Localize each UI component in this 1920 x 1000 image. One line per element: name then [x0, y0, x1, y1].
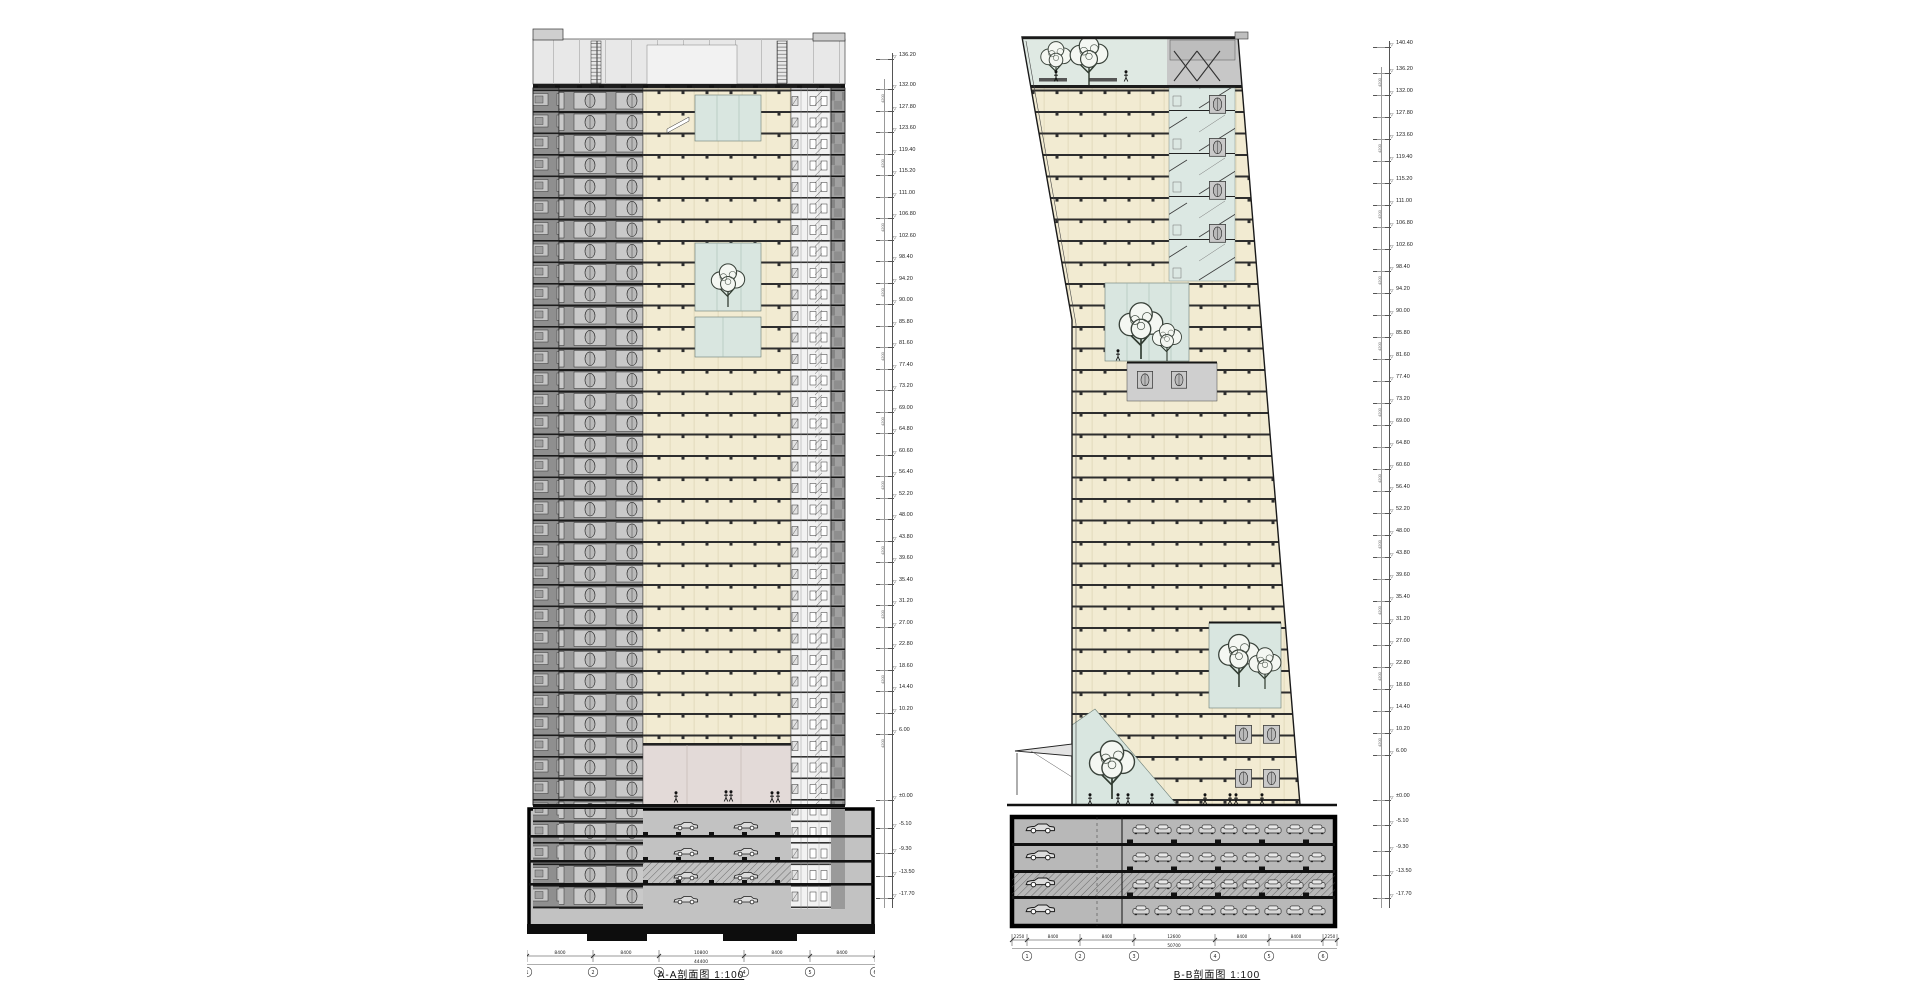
service-risers [791, 88, 831, 805]
svg-text:4: 4 [1213, 954, 1216, 960]
level-marker-icon: ▽ [1390, 43, 1393, 47]
level-elevation-label: ±0.00 [899, 794, 913, 799]
level-elevation-label: 10.20 [1396, 727, 1410, 732]
elevator-icon [1235, 725, 1251, 743]
level-elevation-label: 90.00 [1396, 309, 1410, 314]
level-elevation-label: 64.80 [899, 427, 913, 432]
level-elevation-label: 77.40 [1396, 375, 1410, 380]
level-elevation-label: 48.00 [1396, 529, 1410, 534]
level-marker-icon: ▽ [1390, 531, 1393, 535]
level-elevation-label: 77.40 [899, 363, 913, 368]
level-marker-icon: ▽ [893, 279, 896, 283]
floor-height-label: 4200 [880, 417, 885, 426]
basement-parking [529, 809, 873, 926]
caption-section-a: A-A剖面图 1:100 [527, 966, 875, 981]
svg-text:8400: 8400 [1048, 934, 1059, 939]
svg-text:2: 2 [1078, 954, 1081, 960]
level-marker-icon: ▽ [1390, 821, 1393, 825]
level-marker-icon: ▽ [1390, 201, 1393, 205]
elevator-lobby [1127, 362, 1217, 402]
level-marker-icon: ▽ [1390, 597, 1393, 601]
scale-line [892, 53, 893, 908]
level-elevation-label: 115.20 [899, 169, 915, 174]
level-elevation-label: 6.00 [899, 728, 910, 733]
dimension-total: 50700 [1167, 943, 1181, 948]
stair-shaft [777, 41, 787, 84]
level-marker-icon: ▽ [1390, 619, 1393, 623]
level-marker-icon: ▽ [893, 85, 896, 89]
elevator-icon [1209, 224, 1225, 242]
level-marker-icon: ▽ [1390, 847, 1393, 851]
foundation-mat [527, 924, 875, 941]
level-elevation-label: -5.10 [899, 822, 912, 827]
level-elevation-label: 140.40 [1396, 41, 1413, 46]
east-facade-steps [831, 88, 845, 805]
level-elevation-label: 27.00 [899, 621, 913, 626]
level-elevation-label: 94.20 [899, 277, 913, 282]
level-marker-icon: ▽ [893, 193, 896, 197]
level-elevation-label: 22.80 [899, 642, 913, 647]
level-elevation-label: 56.40 [1396, 485, 1410, 490]
office-floors [643, 88, 791, 745]
sky-garden-lower [1209, 622, 1281, 709]
floor-height-label: 4200 [880, 159, 885, 168]
upper-stair-zone [1169, 88, 1235, 281]
level-elevation-label: 27.00 [1396, 639, 1410, 644]
atrium-middle [695, 243, 761, 311]
caption-section-a-text: A-A剖面图 1:100 [658, 970, 744, 981]
level-marker-icon: ▽ [893, 537, 896, 541]
parking-row-b1 [1133, 825, 1325, 834]
floor-height-label: 4200 [880, 481, 885, 490]
level-elevation-label: -5.10 [1396, 819, 1409, 824]
caption-section-b: B-B剖面图 1:100 [997, 966, 1437, 981]
level-marker-icon: ▽ [1390, 223, 1393, 227]
level-elevation-label: 31.20 [899, 599, 913, 604]
svg-text:8400: 8400 [554, 950, 565, 956]
level-marker-icon: ▽ [1390, 894, 1393, 898]
level-marker-icon: ▽ [893, 150, 896, 154]
scale-line [1389, 41, 1390, 908]
svg-text:12600: 12600 [1167, 934, 1181, 939]
elevator-core [559, 88, 643, 805]
level-elevation-label: 123.60 [1396, 133, 1413, 138]
level-marker-icon: ▽ [893, 107, 896, 111]
level-elevation-label: -9.30 [1396, 845, 1409, 850]
level-elevation-label: 35.40 [899, 578, 913, 583]
level-marker-icon: ▽ [893, 515, 896, 519]
floor-height-label: 4200 [1377, 408, 1382, 417]
level-elevation-label: 85.80 [1396, 331, 1410, 336]
level-marker-icon: ▽ [893, 365, 896, 369]
level-marker-icon: ▽ [893, 55, 896, 59]
level-marker-icon: ▽ [1390, 69, 1393, 73]
level-marker-icon: ▽ [1390, 245, 1393, 249]
atrium-lower [695, 317, 761, 357]
floor-height-label: 4200 [880, 546, 885, 555]
level-elevation-label: 81.60 [1396, 353, 1410, 358]
stair-shaft [591, 41, 601, 84]
level-elevation-label: 22.80 [1396, 661, 1410, 666]
level-marker-icon: ▽ [893, 824, 896, 828]
level-marker-icon: ▽ [893, 257, 896, 261]
level-elevation-label: 64.80 [1396, 441, 1410, 446]
level-elevation-label: 132.00 [899, 83, 916, 88]
dimension-values: 2250 8400 8400 12600 8400 8400 2250 5070… [1014, 934, 1336, 948]
level-elevation-label: 60.60 [1396, 463, 1410, 468]
floor-height-label: 4200 [1377, 606, 1382, 615]
level-elevation-label: 119.40 [1396, 155, 1412, 160]
level-marker-icon: ▽ [893, 601, 896, 605]
riser-hatch-column [815, 88, 822, 805]
level-elevation-label: -17.70 [899, 892, 915, 897]
level-elevation-label: 111.00 [1396, 199, 1412, 204]
level-marker-icon: ▽ [893, 796, 896, 800]
level-marker-icon: ▽ [1390, 179, 1393, 183]
bench [1039, 78, 1067, 82]
level-marker-icon: ▽ [893, 666, 896, 670]
elevator-icon [1263, 769, 1279, 787]
level-marker-icon: ▽ [893, 849, 896, 853]
floor-height-label: 4200 [1377, 738, 1382, 747]
level-marker-icon: ▽ [893, 894, 896, 898]
floor-height-label: 4200 [1377, 78, 1382, 87]
level-marker-icon: ▽ [893, 343, 896, 347]
bench [1089, 78, 1117, 82]
grid-bubbles: 1 2 3 4 5 6 [1022, 951, 1328, 961]
entrance-canopy [1015, 744, 1072, 795]
section-a-roof-crown [533, 29, 845, 88]
level-elevation-label: 94.20 [1396, 287, 1410, 292]
svg-text:2250: 2250 [1325, 934, 1336, 939]
level-elevation-label: 14.40 [1396, 705, 1410, 710]
level-elevation-label: 48.00 [899, 513, 913, 518]
level-elevation-label: 102.60 [1396, 243, 1413, 248]
level-marker-icon: ▽ [1390, 377, 1393, 381]
floor-height-label: 4200 [880, 94, 885, 103]
level-marker-icon: ▽ [893, 451, 896, 455]
level-elevation-label: 69.00 [899, 406, 913, 411]
level-elevation-label: 43.80 [1396, 551, 1410, 556]
level-marker-icon: ▽ [893, 236, 896, 240]
level-elevation-label: ±0.00 [1396, 794, 1410, 799]
level-marker-icon: ▽ [1390, 157, 1393, 161]
level-elevation-label: 127.80 [899, 105, 916, 110]
elevator-icon [1209, 95, 1225, 113]
floor-height-label: 4200 [880, 739, 885, 748]
floor-height-label: 4200 [1377, 540, 1382, 549]
parapet-right [1235, 32, 1248, 39]
floor-height-label: 4200 [880, 610, 885, 619]
level-elevation-label: 52.20 [899, 492, 913, 497]
basement-parking [1012, 817, 1335, 926]
level-elevation-label: 31.20 [1396, 617, 1410, 622]
level-marker-icon: ▽ [893, 171, 896, 175]
level-elevation-label: 106.80 [899, 212, 916, 217]
level-marker-icon: ▽ [1390, 333, 1393, 337]
level-elevation-label: -13.50 [1396, 869, 1412, 874]
level-marker-icon: ▽ [1390, 707, 1393, 711]
level-elevation-label: 98.40 [1396, 265, 1410, 270]
level-marker-icon: ▽ [1390, 641, 1393, 645]
level-marker-icon: ▽ [1390, 663, 1393, 667]
level-marker-icon: ▽ [893, 558, 896, 562]
lobby [643, 743, 791, 805]
level-elevation-label: 102.60 [899, 234, 916, 239]
level-elevation-label: -13.50 [899, 870, 915, 875]
level-marker-icon: ▽ [893, 128, 896, 132]
level-marker-icon: ▽ [1390, 575, 1393, 579]
scale-dim-line [884, 79, 885, 908]
svg-text:6: 6 [1321, 954, 1324, 960]
level-marker-icon: ▽ [1390, 399, 1393, 403]
dimension-total: 44400 [694, 959, 708, 965]
level-elevation-label: 106.80 [1396, 221, 1413, 226]
level-elevation-label: 6.00 [1396, 749, 1407, 754]
level-elevation-label: -9.30 [899, 847, 912, 852]
level-elevation-label: 18.60 [899, 664, 913, 669]
level-elevation-label: 10.20 [899, 707, 913, 712]
level-marker-icon: ▽ [1390, 91, 1393, 95]
level-elevation-label: 132.00 [1396, 89, 1413, 94]
level-marker-icon: ▽ [1390, 421, 1393, 425]
svg-text:8400: 8400 [1291, 934, 1302, 939]
caption-section-b-text: B-B剖面图 1:100 [1174, 970, 1260, 981]
level-marker-icon: ▽ [1390, 289, 1393, 293]
level-elevation-label: 69.00 [1396, 419, 1410, 424]
elevation-scale-left: ▽136.20▽132.004200▽127.80▽123.60▽119.404… [868, 25, 938, 985]
elevator-icon [1235, 769, 1251, 787]
level-marker-icon: ▽ [893, 644, 896, 648]
level-marker-icon: ▽ [1390, 796, 1393, 800]
svg-text:8400: 8400 [1237, 934, 1248, 939]
svg-text:8400: 8400 [771, 950, 782, 956]
floor-height-label: 4200 [880, 223, 885, 232]
svg-text:5: 5 [1267, 954, 1270, 960]
parapet-right [813, 33, 845, 41]
dimension-values: 8400 8400 10800 8400 8400 44400 [554, 950, 847, 965]
scale-dim-line [1381, 67, 1382, 908]
parking-row-b2 [1133, 853, 1325, 862]
level-marker-icon: ▽ [893, 472, 896, 476]
svg-text:10800: 10800 [694, 950, 708, 956]
level-marker-icon: ▽ [893, 214, 896, 218]
level-marker-icon: ▽ [893, 872, 896, 876]
level-marker-icon: ▽ [1390, 487, 1393, 491]
level-marker-icon: ▽ [1390, 509, 1393, 513]
level-elevation-label: 111.00 [899, 191, 915, 196]
level-elevation-label: 136.20 [1396, 67, 1413, 72]
level-marker-icon: ▽ [1390, 113, 1393, 117]
elevator-icon [1209, 138, 1225, 156]
floor-height-label: 4200 [1377, 144, 1382, 153]
level-marker-icon: ▽ [1390, 553, 1393, 557]
level-marker-icon: ▽ [893, 300, 896, 304]
level-marker-icon: ▽ [893, 386, 896, 390]
floor-height-label: 4200 [1377, 276, 1382, 285]
level-marker-icon: ▽ [1390, 443, 1393, 447]
level-marker-icon: ▽ [893, 408, 896, 412]
floor-height-label: 4200 [880, 675, 885, 684]
svg-text:2250: 2250 [1014, 934, 1025, 939]
level-marker-icon: ▽ [1390, 311, 1393, 315]
floor-height-label: 4200 [1377, 342, 1382, 351]
level-elevation-label: 81.60 [899, 341, 913, 346]
parking-row-b3 [1133, 880, 1325, 889]
waterproofing-hatch-level [643, 863, 791, 884]
roof-garden [1017, 36, 1257, 88]
level-elevation-label: 35.40 [1396, 595, 1410, 600]
elevator-icon [1171, 371, 1186, 388]
level-marker-icon: ▽ [893, 580, 896, 584]
level-elevation-label: 85.80 [899, 320, 913, 325]
level-elevation-label: 119.40 [899, 148, 915, 153]
level-marker-icon: ▽ [1390, 355, 1393, 359]
parapet-left [533, 29, 563, 40]
ground-slab [533, 804, 845, 807]
level-elevation-label: 18.60 [1396, 683, 1410, 688]
level-elevation-label: 39.60 [899, 556, 913, 561]
svg-text:8400: 8400 [620, 950, 631, 956]
level-elevation-label: 43.80 [899, 535, 913, 540]
floor-height-label: 4200 [1377, 672, 1382, 681]
level-elevation-label: 56.40 [899, 470, 913, 475]
level-marker-icon: ▽ [1390, 729, 1393, 733]
level-marker-icon: ▽ [893, 429, 896, 433]
floor-height-label: 4200 [880, 352, 885, 361]
floor-height-label: 4200 [1377, 210, 1382, 219]
floor-height-label: 4200 [880, 288, 885, 297]
svg-text:8400: 8400 [836, 950, 847, 956]
west-facade-cells [533, 88, 559, 805]
level-elevation-label: 127.80 [1396, 111, 1413, 116]
level-elevation-label: 60.60 [899, 449, 913, 454]
elevator-icon [1209, 181, 1225, 199]
level-marker-icon: ▽ [1390, 465, 1393, 469]
elevator-icon [1137, 371, 1152, 388]
level-elevation-label: 39.60 [1396, 573, 1410, 578]
elevation-scale-right: ▽140.40▽136.204200▽132.00▽127.80▽123.604… [1365, 25, 1435, 985]
level-marker-icon: ▽ [893, 623, 896, 627]
level-marker-icon: ▽ [1390, 267, 1393, 271]
level-marker-icon: ▽ [893, 687, 896, 691]
svg-text:3: 3 [1132, 954, 1135, 960]
level-marker-icon: ▽ [1390, 751, 1393, 755]
level-elevation-label: 73.20 [899, 384, 913, 389]
level-marker-icon: ▽ [893, 494, 896, 498]
level-marker-icon: ▽ [893, 322, 896, 326]
svg-text:8400: 8400 [1102, 934, 1113, 939]
level-marker-icon: ▽ [893, 709, 896, 713]
section-a-drawing: 8400 8400 10800 8400 8400 44400 1 2 3 4 … [527, 25, 875, 985]
level-elevation-label: 90.00 [899, 298, 913, 303]
sky-garden-middle [1105, 283, 1189, 361]
svg-text:1: 1 [1025, 954, 1028, 960]
parking-row-b4 [1133, 906, 1325, 915]
level-marker-icon: ▽ [1390, 871, 1393, 875]
level-marker-icon: ▽ [1390, 685, 1393, 689]
level-marker-icon: ▽ [893, 730, 896, 734]
elevator-icon [1263, 725, 1279, 743]
level-elevation-label: 73.20 [1396, 397, 1410, 402]
level-elevation-label: 123.60 [899, 126, 916, 131]
architectural-sections-sheet: 8400 8400 10800 8400 8400 44400 1 2 3 4 … [0, 0, 1920, 1000]
level-elevation-label: 52.20 [1396, 507, 1410, 512]
level-elevation-label: 136.20 [899, 53, 916, 58]
level-elevation-label: 115.20 [1396, 177, 1412, 182]
level-elevation-label: -17.70 [1396, 892, 1412, 897]
level-elevation-label: 14.40 [899, 685, 913, 690]
floor-height-label: 4200 [1377, 474, 1382, 483]
level-elevation-label: 98.40 [899, 255, 913, 260]
level-marker-icon: ▽ [1390, 135, 1393, 139]
